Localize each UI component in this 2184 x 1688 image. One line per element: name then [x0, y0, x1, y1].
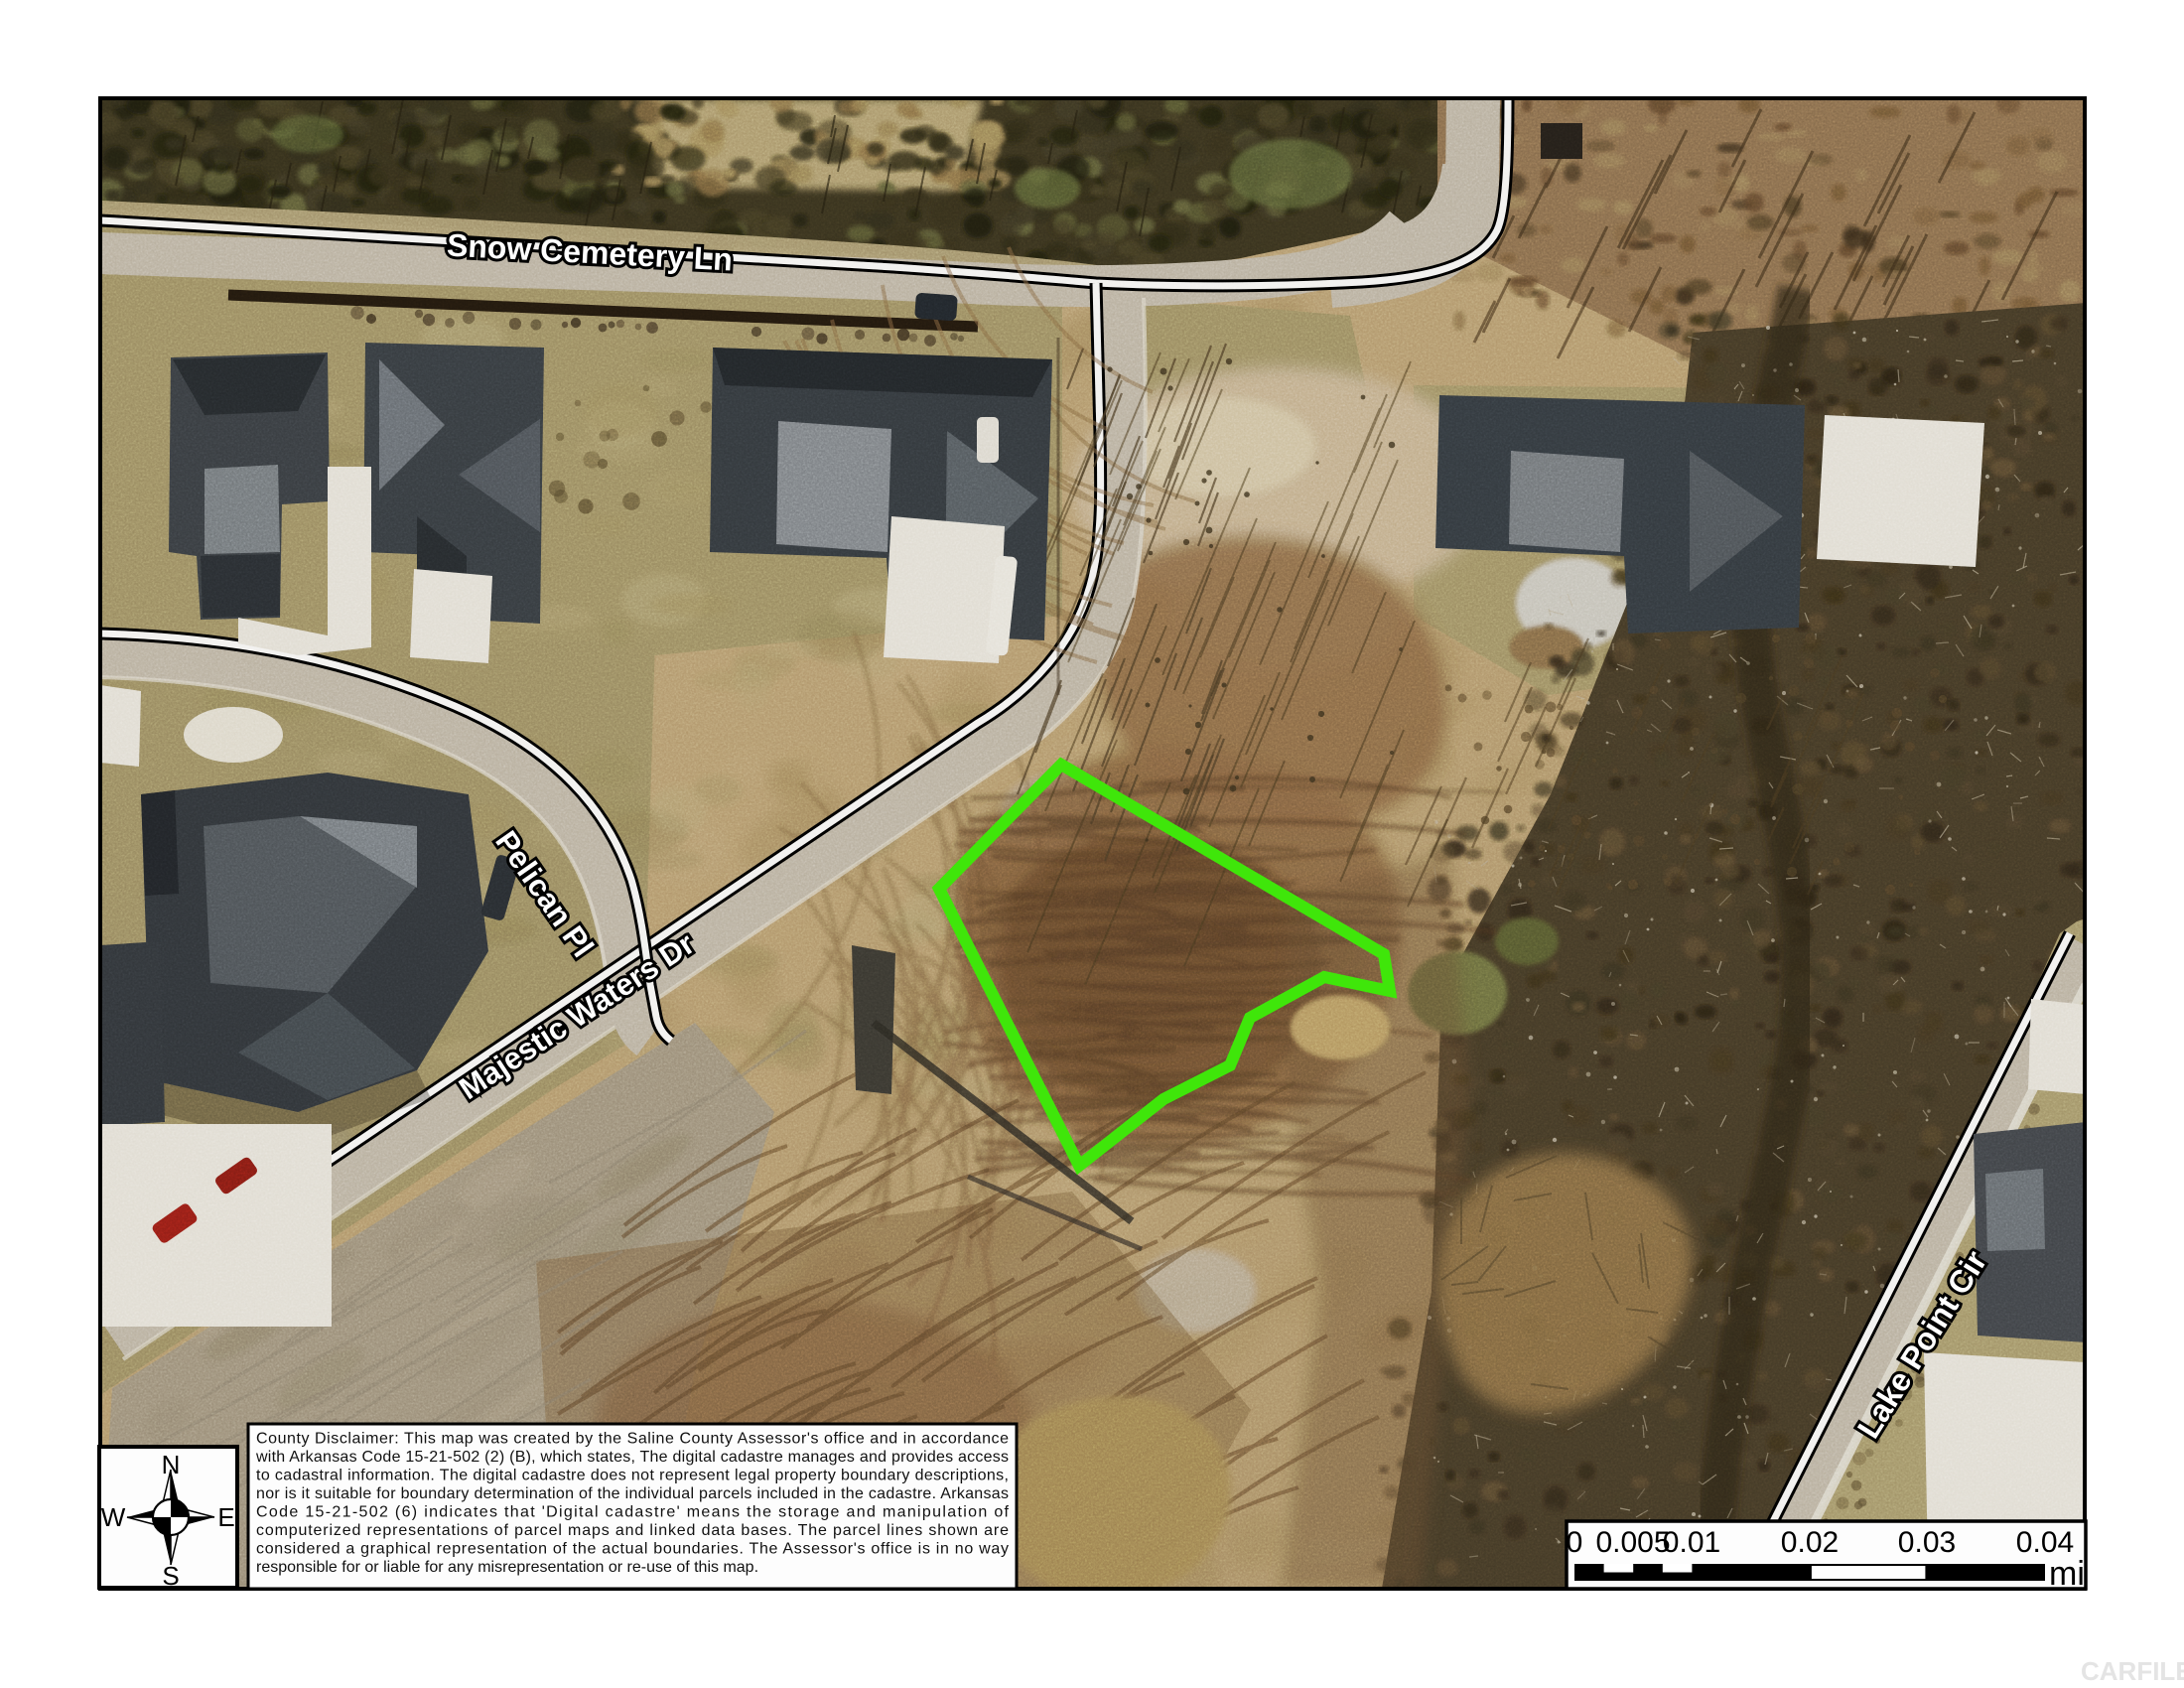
svg-text:considered a graphical represe: considered a graphical representation of… [256, 1541, 1009, 1558]
svg-text:S: S [162, 1561, 179, 1591]
svg-text:W: W [101, 1502, 126, 1532]
svg-text:nor is it suitable for boundar: nor is it suitable for boundary determin… [256, 1485, 1009, 1502]
svg-text:0.02: 0.02 [1781, 1526, 1839, 1559]
svg-text:0: 0 [1567, 1526, 1583, 1559]
svg-text:N: N [162, 1450, 181, 1479]
svg-text:to cadastral information. The: to cadastral information. The digital ca… [256, 1468, 1009, 1484]
svg-text:computerized representations o: computerized representations of parcel m… [256, 1522, 1009, 1539]
svg-text:responsible for or liable for: responsible for or liable for any misrep… [256, 1559, 758, 1576]
svg-text:Code 15-21-502 (6) indicates t: Code 15-21-502 (6) indicates that 'Digit… [256, 1504, 1010, 1521]
svg-text:County Disclaimer: This map wa: County Disclaimer: This map was created … [256, 1431, 1009, 1448]
svg-text:0.03: 0.03 [1898, 1526, 1956, 1559]
svg-text:0.01: 0.01 [1663, 1526, 1720, 1559]
svg-text:CARFILE, INC: CARFILE, INC [2081, 1656, 2184, 1686]
svg-text:E: E [217, 1502, 234, 1532]
svg-text:with Arkansas Code 15-21-502 (: with Arkansas Code 15-21-502 (2) (B), wh… [255, 1449, 1009, 1466]
svg-text:0.005: 0.005 [1595, 1526, 1670, 1559]
svg-text:mi: mi [2049, 1555, 2085, 1593]
